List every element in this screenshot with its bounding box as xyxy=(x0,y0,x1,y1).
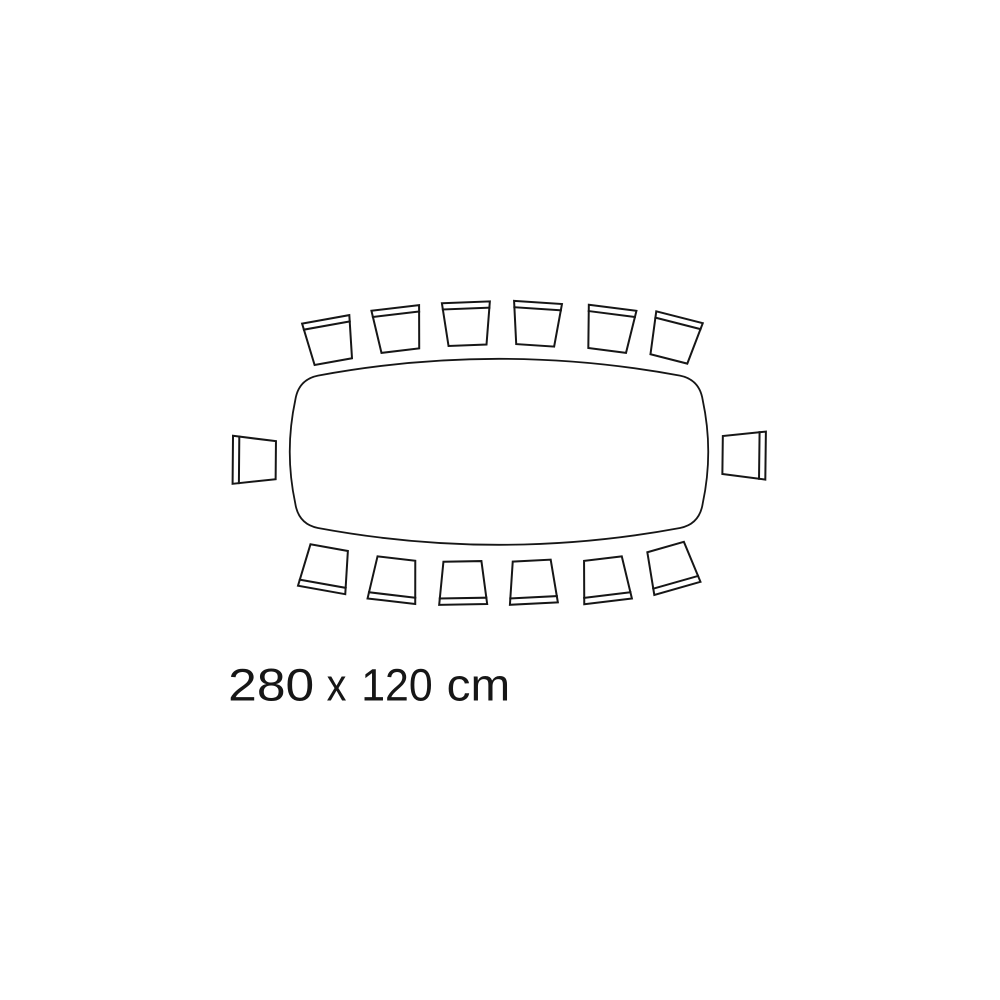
svg-text:x: x xyxy=(327,660,347,711)
svg-text:280: 280 xyxy=(228,660,314,711)
svg-text:120: 120 xyxy=(361,660,433,711)
svg-text:cm: cm xyxy=(447,660,511,711)
